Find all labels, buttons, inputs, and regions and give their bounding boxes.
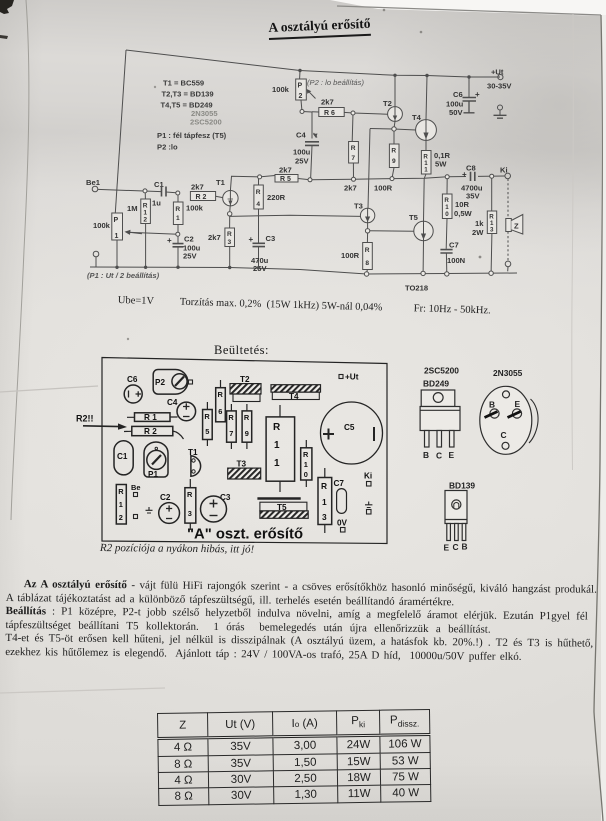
svg-text:T3: T3	[237, 460, 247, 469]
svg-text:100u: 100u	[293, 148, 311, 157]
svg-text:3: 3	[228, 239, 232, 246]
svg-text:100N: 100N	[447, 256, 465, 265]
svg-text:R: R	[365, 247, 370, 254]
svg-text:C2: C2	[184, 235, 194, 244]
svg-text:1: 1	[445, 204, 449, 211]
svg-text:1: 1	[176, 215, 180, 222]
svg-text:R: R	[256, 189, 261, 196]
svg-text:R 2: R 2	[196, 194, 207, 201]
svg-text:6: 6	[218, 407, 222, 416]
svg-text:C7: C7	[449, 241, 459, 250]
svg-text:+: +	[462, 170, 467, 179]
svg-text:9: 9	[392, 158, 396, 165]
svg-text:0: 0	[304, 470, 308, 479]
svg-text:"A" oszt. erősítő: "A" oszt. erősítő	[187, 527, 303, 543]
svg-text:10R: 10R	[455, 200, 469, 209]
svg-text:B: B	[489, 400, 495, 410]
svg-text:2SC5200: 2SC5200	[190, 118, 222, 127]
svg-text:2: 2	[299, 93, 303, 100]
svg-text:P: P	[114, 217, 119, 224]
svg-text:1M: 1M	[127, 204, 138, 213]
svg-text:C3: C3	[266, 234, 276, 243]
svg-text:C3: C3	[220, 493, 231, 502]
svg-text:9: 9	[245, 429, 249, 438]
svg-text:4: 4	[256, 201, 260, 208]
svg-text:1: 1	[274, 458, 280, 469]
svg-text:T4: T4	[289, 392, 299, 401]
svg-text:30-35V: 30-35V	[487, 82, 512, 91]
svg-text:+: +	[167, 236, 172, 245]
svg-text:2SC5200: 2SC5200	[424, 366, 459, 376]
svg-text:2k7: 2k7	[321, 98, 334, 107]
svg-text:T4: T4	[412, 113, 422, 122]
svg-text:R: R	[351, 145, 356, 152]
svg-text:R: R	[175, 206, 180, 213]
svg-text:C: C	[453, 542, 459, 552]
svg-text:+Ut: +Ut	[345, 373, 359, 382]
svg-text:C4: C4	[167, 398, 178, 407]
svg-text:7: 7	[351, 155, 355, 162]
svg-text:R: R	[187, 490, 193, 499]
svg-text:1: 1	[424, 167, 428, 174]
svg-text:R 5: R 5	[280, 176, 291, 183]
svg-text:1: 1	[322, 497, 327, 507]
svg-text:1: 1	[115, 233, 119, 240]
svg-text:1: 1	[119, 500, 123, 509]
svg-text:(P1 : Ut / 2 beállítás): (P1 : Ut / 2 beállítás)	[87, 271, 160, 280]
svg-text:P2: P2	[155, 378, 165, 387]
svg-text:R: R	[244, 413, 250, 422]
svg-text:5: 5	[205, 427, 209, 436]
svg-text:T5: T5	[409, 213, 419, 222]
svg-text:C7: C7	[334, 479, 345, 488]
svg-text:T2: T2	[240, 375, 250, 384]
svg-text:C5: C5	[344, 423, 355, 432]
svg-text:(P2 : lo beállítás): (P2 : lo beállítás)	[307, 78, 364, 87]
svg-text:C1: C1	[154, 180, 164, 189]
svg-text:0: 0	[445, 211, 449, 218]
svg-text:R: R	[143, 203, 148, 210]
svg-text:0V: 0V	[337, 519, 348, 528]
svg-text:3: 3	[188, 509, 192, 518]
svg-text:E: E	[449, 450, 455, 460]
svg-text:220R: 220R	[267, 193, 286, 202]
svg-text:C4: C4	[296, 131, 306, 140]
svg-text:R: R	[391, 148, 396, 155]
svg-text:R: R	[118, 487, 124, 496]
svg-text:Be: Be	[131, 483, 140, 492]
svg-text:C: C	[436, 451, 442, 461]
svg-text:R: R	[228, 413, 234, 422]
svg-text:E: E	[444, 543, 450, 553]
svg-text:B: B	[462, 542, 468, 552]
svg-text:25V: 25V	[253, 264, 267, 273]
svg-text:R 6: R 6	[324, 110, 335, 117]
svg-text:2N3055: 2N3055	[493, 368, 523, 378]
svg-text:T1 = BC559: T1 = BC559	[163, 79, 204, 88]
svg-text:B: B	[423, 450, 429, 460]
svg-text:35V: 35V	[466, 192, 480, 201]
svg-text:1: 1	[304, 460, 308, 469]
svg-text:T2,T3 = BD139: T2,T3 = BD139	[162, 90, 214, 99]
svg-text:1: 1	[143, 210, 147, 217]
svg-text:R: R	[444, 197, 449, 204]
svg-text:Z: Z	[514, 222, 519, 231]
svg-text:3: 3	[322, 512, 327, 522]
svg-text:100k: 100k	[186, 204, 204, 213]
svg-text:1: 1	[274, 440, 280, 451]
svg-text:7: 7	[229, 429, 233, 438]
svg-text:R: R	[227, 231, 232, 238]
svg-text:P: P	[298, 83, 303, 90]
svg-text:C8: C8	[466, 164, 476, 173]
svg-text:5W: 5W	[435, 160, 447, 169]
svg-text:1u: 1u	[152, 199, 161, 208]
svg-text:1k: 1k	[475, 219, 484, 228]
svg-text:2: 2	[119, 513, 123, 522]
svg-text:R: R	[218, 390, 224, 399]
svg-text:Be1: Be1	[86, 178, 101, 187]
svg-text:C6: C6	[127, 375, 138, 384]
svg-text:R 2: R 2	[144, 427, 157, 436]
svg-text:2k7: 2k7	[208, 233, 221, 242]
svg-text:R 1: R 1	[144, 413, 157, 422]
svg-text:100R: 100R	[374, 184, 393, 193]
svg-text:E: E	[515, 399, 521, 409]
svg-text:100k: 100k	[272, 85, 290, 94]
svg-text:BD249: BD249	[423, 379, 449, 389]
svg-text:BD139: BD139	[449, 481, 475, 491]
svg-text:R: R	[303, 450, 309, 459]
svg-text:TO218: TO218	[405, 284, 428, 293]
svg-text:25V: 25V	[183, 252, 197, 261]
svg-text:T1: T1	[216, 178, 226, 187]
svg-text:2W: 2W	[472, 228, 484, 237]
svg-text:P1: P1	[148, 470, 158, 479]
svg-text:C: C	[501, 430, 507, 440]
svg-text:50V: 50V	[449, 108, 463, 117]
svg-text:0,5W: 0,5W	[454, 209, 473, 218]
svg-text:2k7: 2k7	[344, 184, 357, 193]
svg-text:P2 :lo: P2 :lo	[157, 143, 178, 152]
svg-text:3: 3	[490, 227, 494, 234]
svg-text:P1 : fél tápfesz (T5): P1 : fél tápfesz (T5)	[157, 131, 227, 140]
svg-text:T3: T3	[354, 202, 363, 211]
svg-text:2: 2	[143, 217, 147, 224]
svg-text:R: R	[204, 412, 210, 421]
svg-text:T2: T2	[383, 99, 392, 108]
svg-text:2k7: 2k7	[191, 183, 204, 192]
svg-text:R2!!: R2!!	[76, 414, 94, 424]
svg-text:8: 8	[365, 260, 369, 267]
svg-text:R: R	[321, 481, 327, 491]
svg-text:C6: C6	[453, 90, 463, 99]
svg-text:100k: 100k	[93, 221, 111, 230]
svg-text:C2: C2	[160, 493, 171, 502]
svg-text:100R: 100R	[341, 251, 360, 260]
svg-text:25V: 25V	[295, 157, 309, 166]
svg-text:Ki: Ki	[364, 472, 372, 481]
svg-text:C1: C1	[117, 452, 128, 461]
svg-text:2k7: 2k7	[279, 166, 292, 175]
svg-text:R: R	[273, 422, 281, 433]
